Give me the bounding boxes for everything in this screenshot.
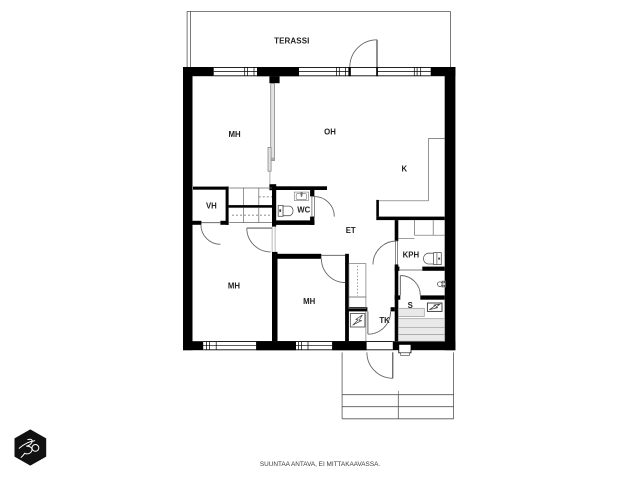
svg-text:KPH: KPH [403, 251, 420, 260]
svg-text:OH: OH [324, 127, 336, 136]
svg-text:SUUNTAA ANTAVA, EI MITTAKAAVAS: SUUNTAA ANTAVA, EI MITTAKAAVASSA. [260, 461, 380, 468]
svg-text:ET: ET [346, 226, 356, 235]
svg-text:WC: WC [297, 206, 310, 215]
svg-text:K: K [401, 165, 407, 174]
svg-text:S: S [408, 301, 413, 310]
svg-text:MH: MH [303, 297, 315, 306]
svg-text:TK: TK [379, 316, 390, 325]
svg-text:MH: MH [228, 282, 240, 291]
svg-text:VH: VH [206, 202, 217, 211]
svg-text:TERASSI: TERASSI [274, 37, 309, 46]
svg-text:MH: MH [229, 130, 241, 139]
